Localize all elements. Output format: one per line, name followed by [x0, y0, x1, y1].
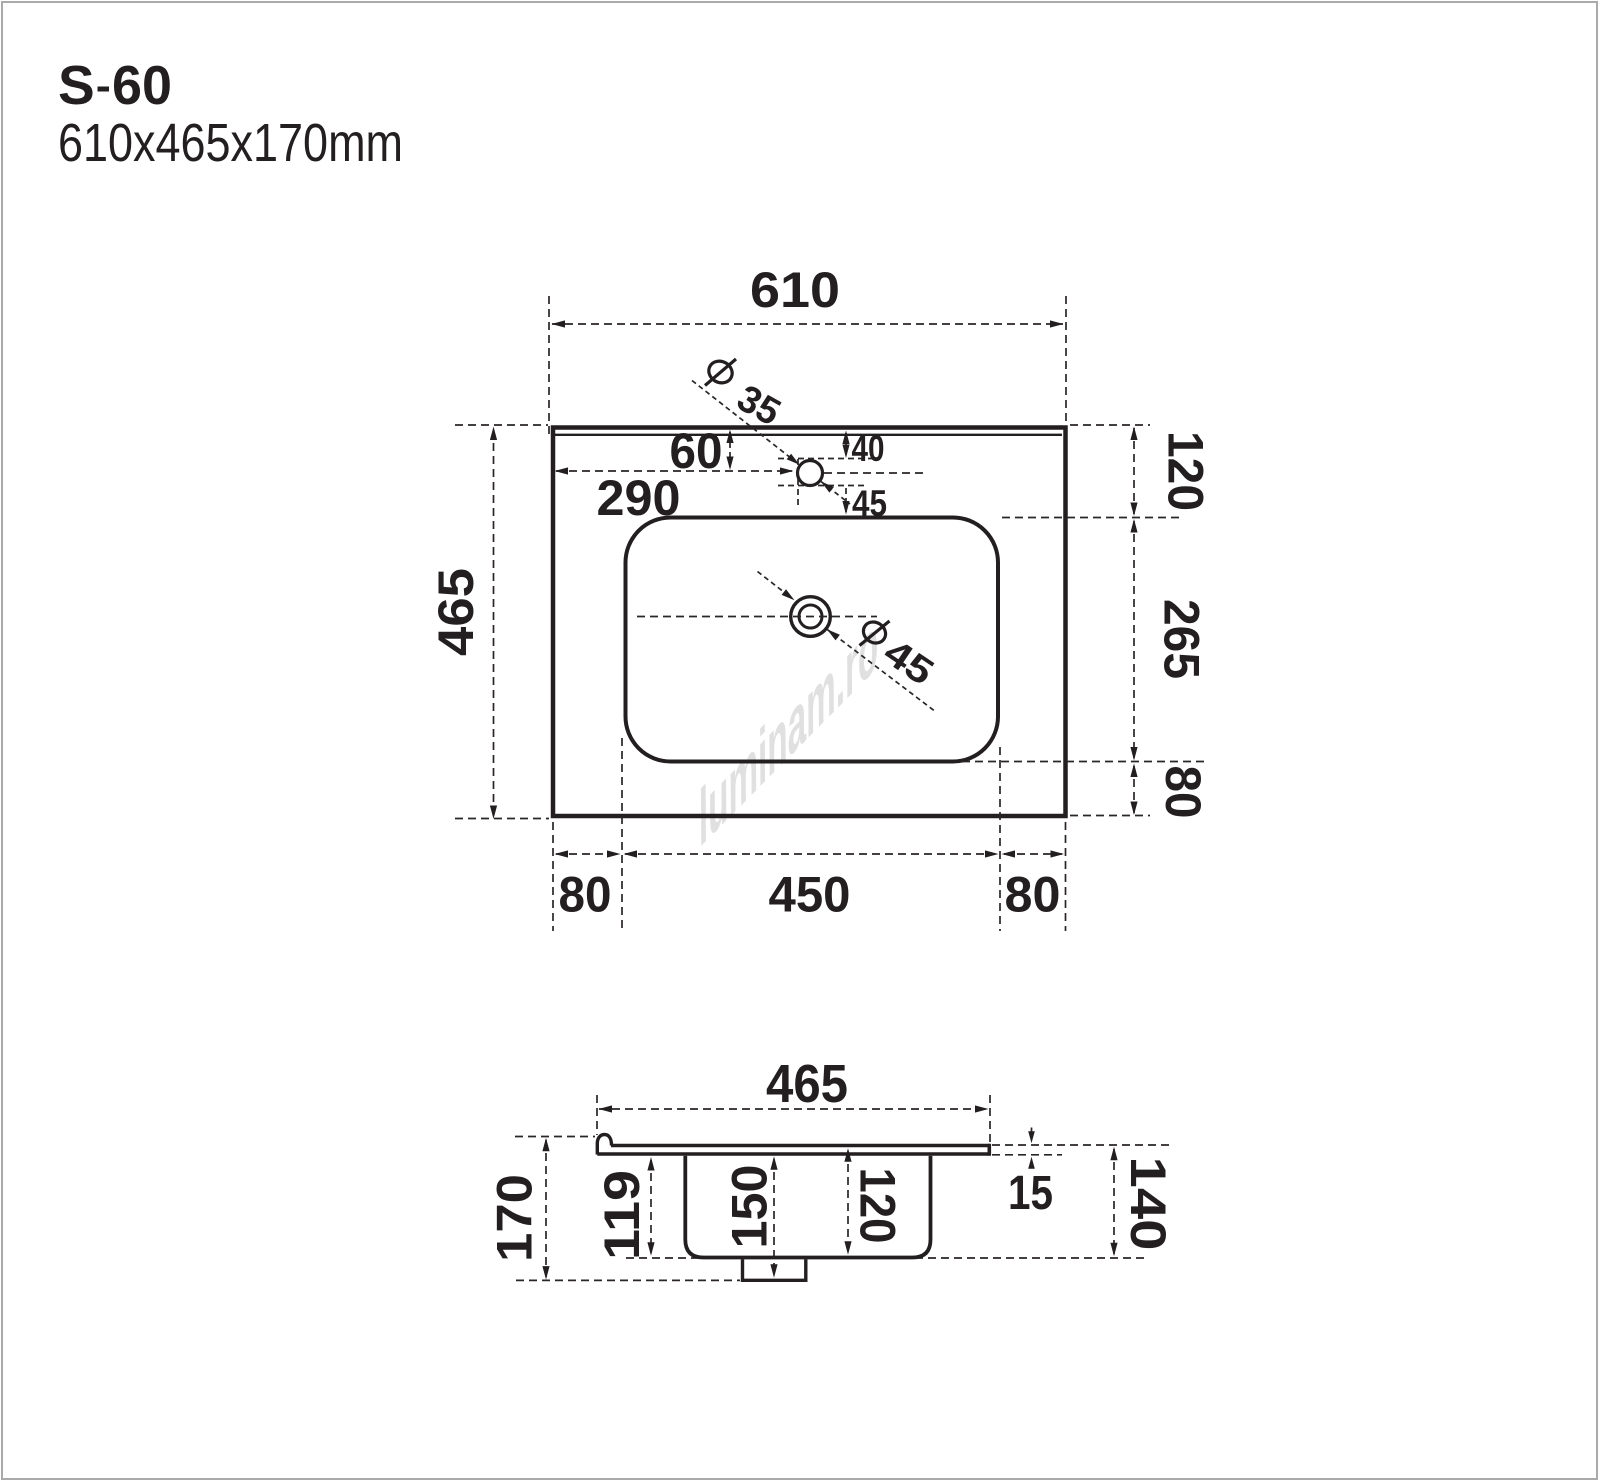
svg-text:170: 170: [487, 1174, 543, 1262]
svg-text:45: 45: [852, 483, 887, 524]
svg-text:450: 450: [769, 867, 851, 923]
svg-text:15: 15: [1008, 1167, 1053, 1220]
svg-text:60: 60: [112, 54, 172, 116]
svg-text:610x465x170mm: 610x465x170mm: [58, 113, 403, 173]
svg-text:120: 120: [850, 1168, 906, 1244]
svg-text:150: 150: [722, 1165, 778, 1249]
svg-text:120: 120: [1158, 431, 1214, 511]
svg-text:S: S: [58, 54, 95, 116]
svg-text:610: 610: [750, 262, 840, 318]
svg-text:40: 40: [852, 428, 885, 469]
svg-text:465: 465: [766, 1054, 848, 1114]
svg-text:119: 119: [594, 1170, 650, 1260]
svg-text:80: 80: [1005, 867, 1061, 923]
svg-text:80: 80: [559, 867, 612, 923]
svg-text:140: 140: [1120, 1157, 1176, 1251]
svg-text:290: 290: [597, 470, 681, 526]
svg-text:265: 265: [1154, 599, 1210, 679]
svg-text:465: 465: [428, 568, 484, 656]
svg-text:80: 80: [1155, 766, 1211, 819]
